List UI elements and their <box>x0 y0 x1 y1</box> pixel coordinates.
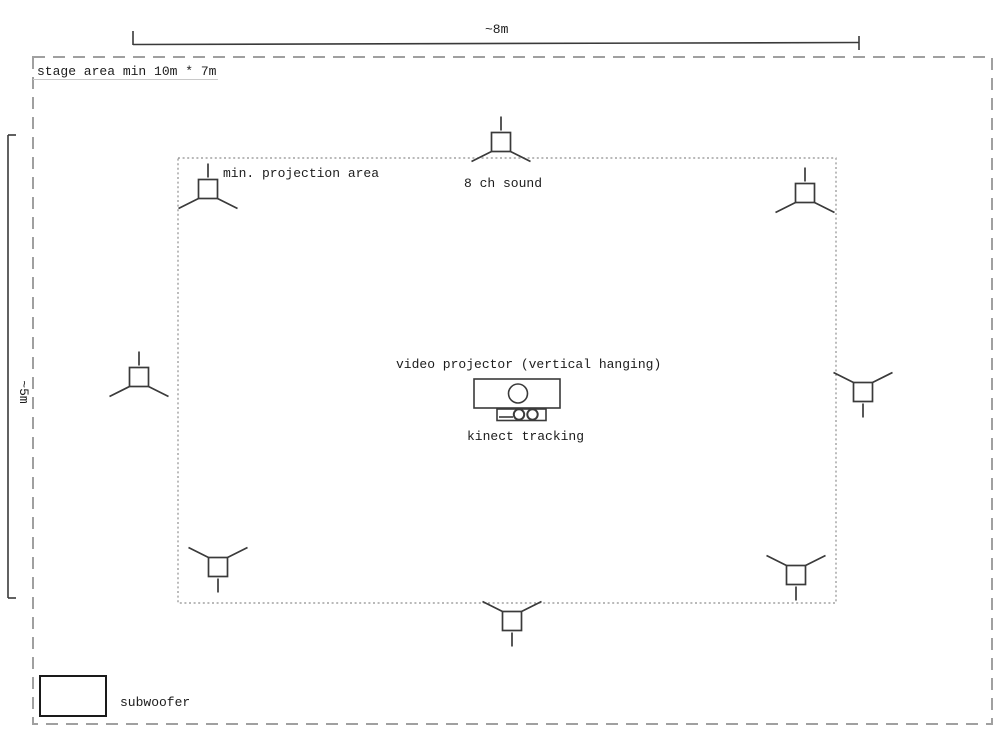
speaker-bottom-center <box>483 602 542 647</box>
kinect-camera-left <box>514 409 524 419</box>
speaker-box <box>796 184 815 203</box>
speaker-leg-left <box>472 152 492 162</box>
diagram-canvas: ~8m ~5m stage area min 10m * 7m min. pro… <box>0 0 1000 750</box>
dimension-height: ~5m <box>8 135 31 598</box>
subwoofer-symbol <box>40 676 106 716</box>
speaker-leg-right <box>815 203 835 213</box>
speaker-box <box>787 566 806 585</box>
speaker-leg-left <box>110 387 130 397</box>
projection-area-label: min. projection area <box>223 166 379 181</box>
stage-area-label: stage area min 10m * 7m <box>37 64 217 79</box>
speaker-box <box>503 612 522 631</box>
speaker-mid-right <box>834 373 893 418</box>
projection-area-boundary <box>178 158 836 603</box>
kinect-camera-right <box>527 409 537 419</box>
speaker-top-center <box>472 117 531 162</box>
stage-plan-diagram: ~8m ~5m stage area min 10m * 7m min. pro… <box>0 0 1000 750</box>
speaker-leg-right <box>218 199 238 209</box>
speaker-leg-left <box>483 602 503 612</box>
speaker-leg-left <box>179 199 199 209</box>
sound-label: 8 ch sound <box>464 176 542 191</box>
speaker-box <box>209 558 228 577</box>
dimension-width-line <box>133 43 859 45</box>
speaker-box <box>854 383 873 402</box>
speaker-leg-right <box>522 602 542 612</box>
speaker-box <box>492 133 511 152</box>
video-projector-symbol <box>474 379 560 408</box>
speaker-leg-right <box>149 387 169 397</box>
speaker-top-right <box>776 168 835 213</box>
speaker-bottom-right <box>767 556 826 601</box>
speaker-bottom-left <box>189 548 248 593</box>
speaker-box <box>130 368 149 387</box>
kinect-label: kinect tracking <box>467 429 584 444</box>
speaker-leg-left <box>767 556 787 566</box>
speaker-leg-left <box>189 548 209 558</box>
speaker-mid-left <box>110 352 169 397</box>
speaker-leg-right <box>806 556 826 566</box>
speaker-leg-left <box>776 203 796 213</box>
subwoofer-label: subwoofer <box>120 695 190 710</box>
speaker-leg-right <box>228 548 248 558</box>
speaker-leg-right <box>511 152 531 162</box>
dimension-width: ~8m <box>133 22 859 50</box>
dimension-height-label: ~5m <box>16 380 31 404</box>
projector-label: video projector (vertical hanging) <box>396 357 661 372</box>
kinect-symbol <box>497 409 546 421</box>
dimension-width-label: ~8m <box>485 22 509 37</box>
speaker-leg-left <box>834 373 854 383</box>
speakers-layer <box>110 117 893 647</box>
speaker-leg-right <box>873 373 893 383</box>
speaker-box <box>199 180 218 199</box>
projector-lens <box>509 384 528 403</box>
